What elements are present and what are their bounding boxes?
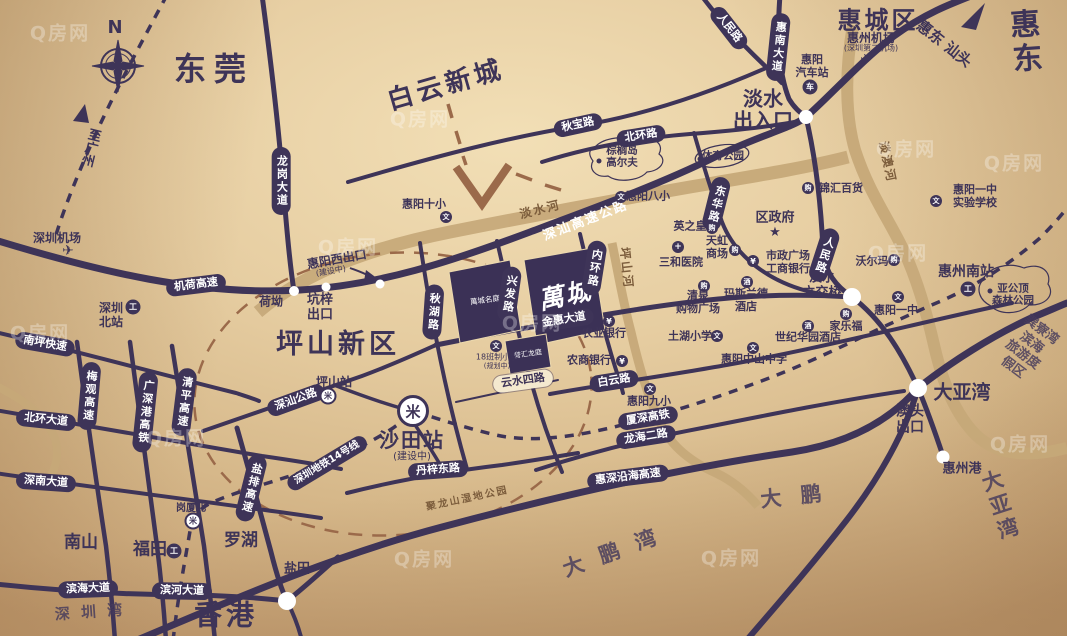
huiyang-10-school: 惠阳十小 bbox=[402, 199, 446, 212]
shenzhen-north-station: 深圳 北站 bbox=[99, 301, 123, 329]
qiuhu-rd: 秋湖路 bbox=[422, 284, 444, 340]
hongkong: 香港 bbox=[194, 599, 258, 630]
huidong: 惠东 bbox=[1008, 7, 1051, 77]
shenzhen-north-icon: 工 bbox=[126, 300, 141, 315]
watermark: Q房网 bbox=[10, 319, 70, 346]
sanhe-hospital: 三和医院 bbox=[659, 257, 703, 270]
heao: 荷坳 bbox=[259, 295, 283, 308]
watermark: Q房网 bbox=[984, 149, 1044, 176]
qingquan-icon: 购 bbox=[698, 280, 710, 292]
palm-island-golf: 棕榈岛 高尔夫 bbox=[606, 145, 638, 170]
planned-school-icon: 文 bbox=[490, 340, 502, 352]
civic-plaza-icbc: 市政广场 工商银行 bbox=[766, 250, 810, 276]
futian: 福田 bbox=[133, 540, 167, 559]
luohu: 罗湖 bbox=[224, 531, 258, 550]
jinhui-mall-icon: 购 bbox=[802, 182, 814, 194]
binhe-ave: 滨河大道 bbox=[152, 582, 212, 600]
century-hotel-icon: 酒 bbox=[802, 320, 814, 332]
watermark: Q房网 bbox=[701, 544, 761, 571]
huiyang-9-school: 惠阳九小 bbox=[627, 396, 671, 409]
shatian-metro-icon: 米 bbox=[397, 395, 429, 427]
rcb-bank-icon: ¥ bbox=[616, 355, 628, 367]
watermark: Q房网 bbox=[394, 545, 454, 572]
district-govt-icon: ★ bbox=[767, 224, 783, 240]
jinhui-department-store: 锦汇百货 bbox=[819, 183, 863, 196]
shatian-station-status: (建设中) bbox=[393, 451, 431, 462]
huiyang-no1-school: 惠阳一中 bbox=[874, 305, 918, 318]
watermark: Q房网 bbox=[30, 19, 90, 46]
century-garden-hotel: 世纪华园酒店 bbox=[775, 332, 841, 345]
zhongshan-school-icon: 文 bbox=[747, 342, 759, 354]
guangzhou-arrow bbox=[73, 104, 89, 123]
yingzhihuang-icon: 购 bbox=[706, 222, 718, 234]
carrefour-icon: 购 bbox=[840, 308, 852, 320]
shenzhen-airport-icon: ✈ bbox=[60, 243, 76, 259]
shantou-arrow bbox=[961, 3, 985, 30]
yagongding-forest-park: 亚公顶 森林公园 bbox=[992, 283, 1034, 308]
rural-commercial-bank: 农商银行 bbox=[567, 355, 611, 368]
huiyang-8-school-icon: 文 bbox=[615, 191, 627, 203]
project-pointer-arrow bbox=[456, 165, 509, 204]
planned-school-sub: (规划中) bbox=[484, 362, 510, 370]
agri-bank: 农业银行 bbox=[582, 328, 626, 341]
compass-n: N bbox=[107, 18, 122, 38]
aotou-exit: 澳头 出口 bbox=[896, 404, 924, 435]
yagongding-dot-icon bbox=[988, 289, 993, 294]
watermark: Q房网 bbox=[868, 239, 928, 266]
huiyang-no1-icon: 文 bbox=[892, 291, 904, 303]
huizhou-airport-icon: ✈ bbox=[858, 52, 874, 68]
sports-park-dot-icon bbox=[698, 157, 703, 162]
watermark: Q房网 bbox=[318, 233, 378, 260]
planned-school: 18班制小学 bbox=[476, 352, 518, 361]
longgang-ave: 龙岗大道 bbox=[272, 147, 291, 215]
nanshan: 南山 bbox=[64, 533, 98, 552]
watermark: Q房网 bbox=[502, 309, 562, 336]
yantian: 盐田 bbox=[284, 563, 310, 578]
huiyang-no1-experimental-school: 惠阳一中 实验学校 bbox=[953, 184, 997, 210]
binhai-ave: 滨海大道 bbox=[58, 580, 119, 599]
yingzhihuang: 英之皇 bbox=[674, 221, 707, 234]
tianhong-mall: 天虹 商场 bbox=[706, 235, 728, 261]
dongguan: 东莞 bbox=[174, 52, 254, 88]
daya-bay-junction: 大亚湾 bbox=[933, 382, 990, 403]
huiyang-no1-exp-icon: 文 bbox=[930, 195, 942, 207]
pingshan-station: 坪山站 bbox=[316, 375, 352, 389]
qingquan-mall: 清泉 购物广场 bbox=[676, 290, 720, 316]
tuhu-school-icon: 文 bbox=[711, 330, 723, 342]
huiyang-9-school-icon: 文 bbox=[644, 383, 656, 395]
pingshan-metro-icon: 米 bbox=[320, 388, 337, 405]
sports-park: 体育公园 bbox=[702, 150, 744, 162]
sanhe-hospital-icon: + bbox=[672, 241, 684, 253]
huiyang-bus-icon: 车 bbox=[803, 80, 818, 95]
shatian-station: 沙田站 bbox=[379, 429, 445, 451]
danshui-entrance: 淡水 出入口 bbox=[733, 88, 793, 133]
pingshan-new-district: 坪山新区 bbox=[276, 330, 400, 360]
huizhou-south-station: 惠州南站 bbox=[938, 265, 994, 281]
compass-icon bbox=[92, 40, 144, 92]
golf-dot-icon bbox=[597, 159, 602, 164]
icbc-icon: ¥ bbox=[747, 255, 759, 267]
location-map: 萬城 萬城名庭 誉汇龙庭 N东莞白云新城惠城区惠东惠东 汕头淡水 出入口坪山新区… bbox=[0, 0, 1067, 636]
watermark: Q房网 bbox=[146, 424, 206, 451]
watermark: Q房网 bbox=[390, 105, 450, 132]
agri-bank-icon: ¥ bbox=[603, 315, 615, 327]
maslande-hotel: 玛斯兰德 酒店 bbox=[724, 288, 768, 314]
tuhu-school: 土湖小学 bbox=[668, 331, 712, 344]
tianhong-icon: 购 bbox=[729, 244, 741, 256]
maslande-icon: 酒 bbox=[741, 276, 753, 288]
kengzi-exit: 坑梓 出口 bbox=[307, 293, 333, 322]
huizhou-south-icon: 工 bbox=[961, 282, 976, 297]
huiyang-10-school-icon: 文 bbox=[440, 211, 452, 223]
watermark: Q房网 bbox=[876, 135, 936, 162]
futian-rail-icon: 工 bbox=[167, 544, 182, 559]
gangxiabei-metro-icon: 米 bbox=[185, 513, 202, 530]
huiyang-bus-station: 惠阳 汽车站 bbox=[796, 54, 829, 80]
watermark: Q房网 bbox=[990, 430, 1050, 457]
zhongshan-school: 惠阳中山中学 bbox=[721, 354, 787, 367]
huiyang-8-school: 惠阳八小 bbox=[626, 191, 670, 204]
